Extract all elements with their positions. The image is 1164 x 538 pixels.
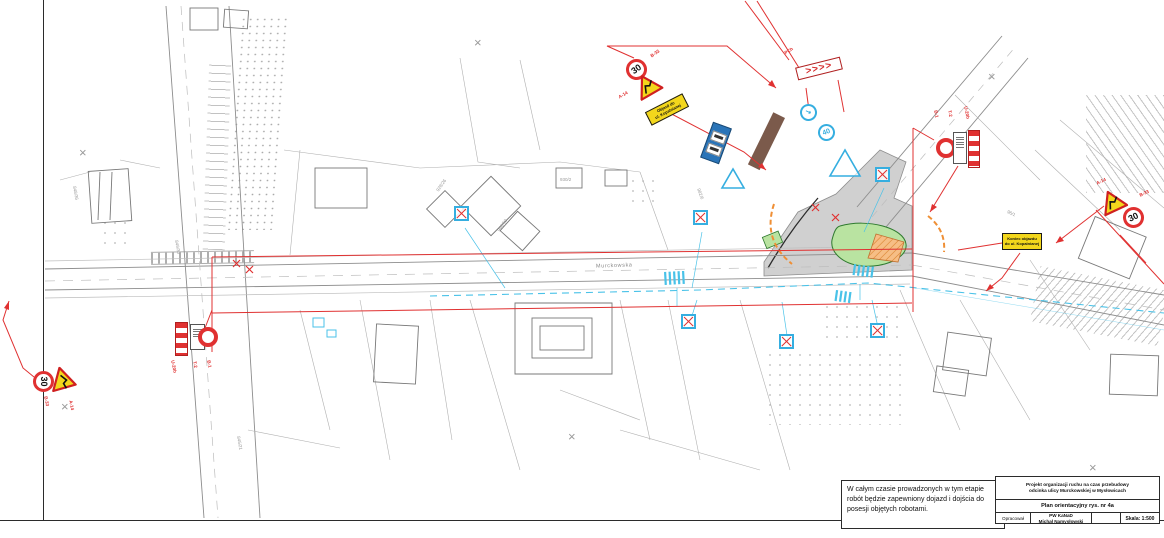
covered-sign-icon xyxy=(454,206,469,221)
covered-sign-icon xyxy=(681,314,696,329)
title-block-project-title: Projekt organizacji ruchu na czas przebu… xyxy=(996,477,1159,500)
title-block-drawing-title: Plan orientacyjny rys. nr 4a xyxy=(996,500,1159,513)
detour-end-plate-sign: Koniec objazdu do ul. Kopalnianej xyxy=(1002,233,1042,250)
covered-sign-icon xyxy=(875,167,890,182)
cad-linework xyxy=(0,0,1164,538)
sign-label-b1: B-1 xyxy=(206,360,212,368)
covered-sign-icon xyxy=(779,334,794,349)
closure-info-plate xyxy=(953,132,967,164)
prepared-by-label-text: Opracował xyxy=(1002,516,1024,522)
access-note-box: W całym czasie prowadzonych w tym etapie… xyxy=(841,480,1005,529)
existing-triangle-sign xyxy=(830,150,860,176)
red-arrowheads xyxy=(4,80,1064,310)
traffic-organization-plan: ↘ 40 >>>> PCh 30 B-33 A-14 Objazd do ul.… xyxy=(0,0,1164,538)
drawing-title: Plan orientacyjny rys. nr 4a xyxy=(1041,503,1114,509)
sign-label-t2: T-2 xyxy=(192,361,198,368)
sign-label-b33: B-33 xyxy=(43,396,50,407)
sign-label-b1: B-1 xyxy=(933,110,939,118)
scale-value: Skala: 1:500 xyxy=(1126,516,1155,522)
prepared-by-value: PW KaNaD Michał Namysłowski xyxy=(1031,513,1092,524)
bus-stop-plate xyxy=(709,130,727,145)
lane-closure-crosses xyxy=(233,204,839,273)
brown-structure xyxy=(748,112,785,170)
work-zone-outline xyxy=(3,1,1164,377)
prepared-by-label: Opracował xyxy=(996,513,1031,524)
no-entry-sign-icon xyxy=(198,327,218,347)
title-block-empty-cell xyxy=(1092,513,1121,524)
covered-sign-icon xyxy=(870,323,885,338)
street-name-label: Murckowska xyxy=(596,262,633,269)
covered-sign-icon xyxy=(693,210,708,225)
title-block: Projekt organizacji ruchu na czas przebu… xyxy=(995,476,1160,524)
existing-triangle-sign xyxy=(722,169,744,188)
detour-end-line2: do ul. Kopalnianej xyxy=(1005,242,1039,246)
sign-label-t2: T-2 xyxy=(947,110,953,117)
title-block-bottom-row: Opracował PW KaNaD Michał Namysłowski Sk… xyxy=(996,513,1159,524)
sign-label-a14: A-14 xyxy=(68,400,75,411)
bus-stop-plate xyxy=(705,142,723,157)
project-title-line2: odcinka ulicy Murckowskiej w Mysłowicach xyxy=(1029,488,1126,494)
u20b-barrier-icon xyxy=(968,130,980,168)
u20b-barrier-icon xyxy=(175,322,188,356)
scale-cell: Skala: 1:500 xyxy=(1121,513,1159,524)
author-name: Michał Namysłowski xyxy=(1039,519,1084,525)
access-note-text: W całym czasie prowadzonych w tym etapie… xyxy=(847,486,984,513)
